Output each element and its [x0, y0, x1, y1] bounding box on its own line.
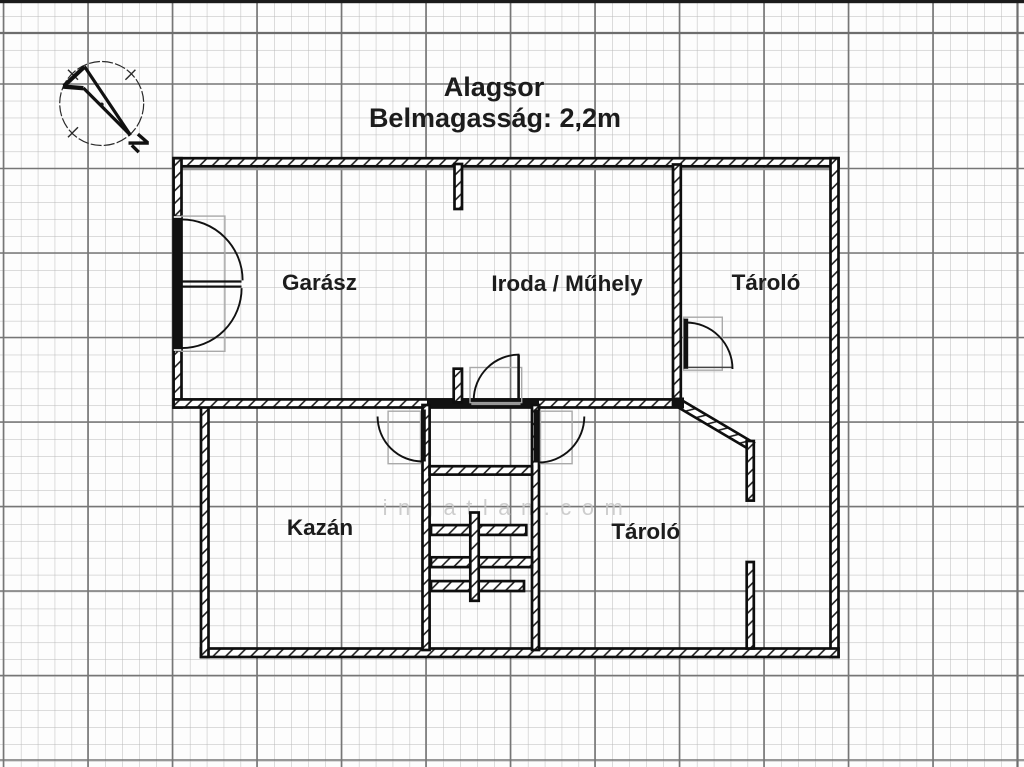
svg-text:Belmagasság: 2,2m: Belmagasság: 2,2m: [369, 103, 621, 133]
svg-text:ingatlan.com: ingatlan.com: [383, 495, 634, 520]
svg-text:Kazán: Kazán: [287, 515, 353, 540]
svg-text:Iroda / Műhely: Iroda / Műhely: [491, 271, 643, 296]
svg-text:Tároló: Tároló: [611, 519, 680, 544]
svg-text:Garász: Garász: [282, 270, 357, 295]
svg-text:Alagsor: Alagsor: [444, 72, 545, 102]
svg-text:Tároló: Tároló: [732, 270, 801, 295]
